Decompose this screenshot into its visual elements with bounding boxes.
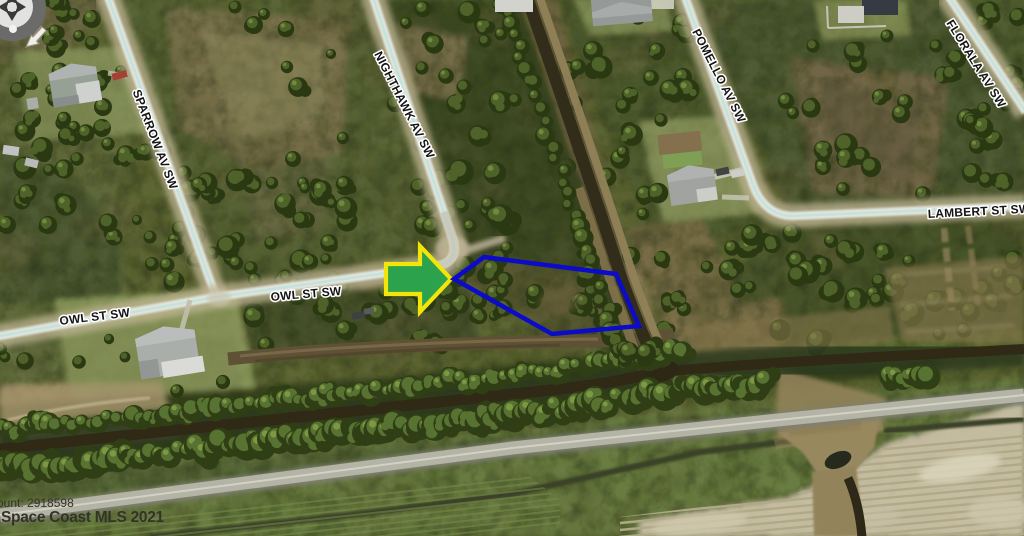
- svg-text:ount: 2918598: ount: 2918598: [0, 496, 74, 510]
- svg-text:Space Coast MLS 2021: Space Coast MLS 2021: [1, 509, 165, 526]
